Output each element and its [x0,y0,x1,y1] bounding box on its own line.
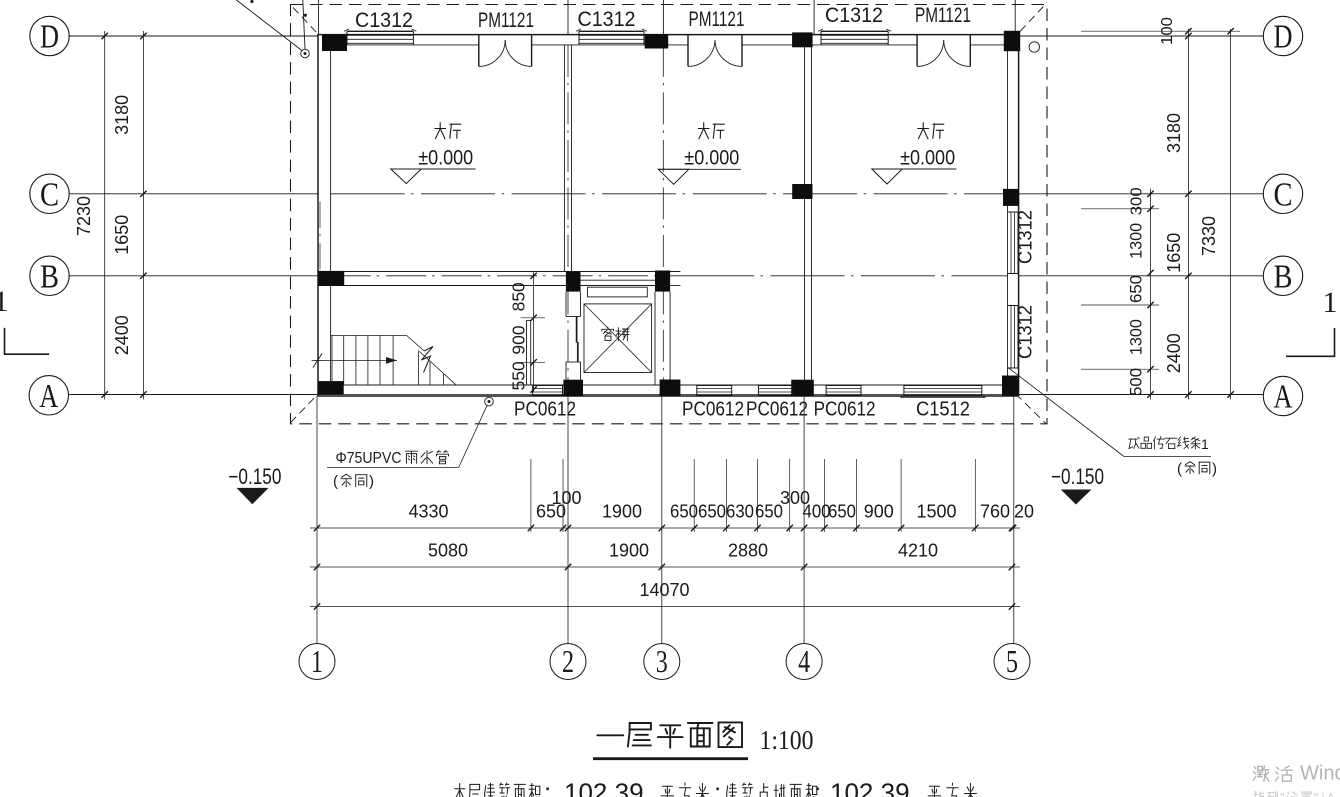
svg-text:500: 500 [1127,368,1146,396]
svg-text:): ) [369,473,374,490]
svg-text:3: 3 [656,643,668,679]
svg-text:100: 100 [1159,17,1176,45]
svg-text:650: 650 [670,502,698,522]
svg-text:A: A [39,378,58,415]
svg-text:PC0612: PC0612 [682,399,744,421]
svg-text:3180: 3180 [112,95,132,135]
svg-text:1300: 1300 [1127,223,1146,259]
svg-text:3180: 3180 [1164,113,1184,153]
svg-text:±0.000: ±0.000 [900,146,955,169]
svg-text:±0.000: ±0.000 [684,146,739,169]
svg-text:4210: 4210 [898,541,938,561]
svg-text:B: B [40,258,59,295]
svg-text:1650: 1650 [1164,233,1184,273]
svg-text:1: 1 [1323,286,1338,319]
svg-text:−0.150: −0.150 [1051,464,1104,489]
svg-text:2880: 2880 [728,541,768,561]
svg-text:PC0612: PC0612 [514,399,576,421]
svg-text:650: 650 [828,502,856,522]
svg-text:B: B [1274,258,1293,295]
svg-text:7230: 7230 [74,196,94,236]
svg-text:): ) [1212,461,1217,478]
svg-text:1: 1 [311,643,323,679]
svg-text:PC0612: PC0612 [746,399,808,421]
svg-text:630: 630 [726,502,754,522]
svg-text:900: 900 [864,502,894,522]
svg-text:900: 900 [509,325,529,354]
svg-text:5: 5 [1006,643,1018,679]
svg-text:±0.000: ±0.000 [418,146,473,169]
svg-text:300: 300 [1129,187,1146,215]
svg-text:650: 650 [755,502,783,522]
svg-text:D: D [40,19,59,56]
svg-text:2: 2 [562,643,574,679]
svg-text:1300: 1300 [1127,319,1146,355]
svg-text:102.39: 102.39 [564,778,644,797]
svg-text:PC0612: PC0612 [814,399,876,421]
svg-text:14070: 14070 [639,580,689,600]
svg-text:C: C [1274,176,1293,213]
svg-text:D: D [1274,19,1293,56]
svg-text:C1312: C1312 [1016,210,1037,264]
svg-text:C1312: C1312 [1016,305,1037,359]
svg-text:C: C [40,176,59,213]
svg-text:7330: 7330 [1199,216,1219,256]
svg-text:1: 1 [1201,436,1209,452]
svg-text:2400: 2400 [112,315,132,355]
svg-text:C1312: C1312 [578,8,636,31]
svg-text:400: 400 [803,502,831,522]
svg-text::: : [544,777,551,797]
svg-text:C1312: C1312 [355,9,413,32]
svg-text:(: ( [333,473,338,490]
svg-text:1900: 1900 [602,502,642,522]
svg-text:−0.150: −0.150 [228,464,281,489]
svg-text:C1312: C1312 [825,4,883,27]
svg-text:PM1121: PM1121 [915,4,971,27]
svg-text:PM1121: PM1121 [478,9,534,32]
svg-text:5080: 5080 [428,541,468,561]
svg-text:(: ( [1177,461,1182,478]
svg-text:2400: 2400 [1164,333,1184,373]
svg-text:650: 650 [698,502,726,522]
svg-text:760: 760 [980,502,1010,522]
svg-text:1500: 1500 [916,502,956,522]
svg-text:850: 850 [509,282,529,311]
svg-text:Φ75UPVC: Φ75UPVC [336,450,402,467]
svg-text:650: 650 [1127,275,1146,303]
svg-text:": " [1314,790,1319,797]
svg-text:": " [1280,790,1285,797]
svg-text:1: 1 [0,285,9,318]
svg-text:Windows: Windows [1300,763,1340,785]
svg-text:C1512: C1512 [916,399,970,421]
svg-text::: : [814,777,821,797]
svg-text:550: 550 [509,361,529,390]
svg-text:100: 100 [551,488,581,508]
svg-text:4330: 4330 [408,502,448,522]
svg-text:1900: 1900 [609,541,649,561]
svg-text:1:100: 1:100 [760,725,814,755]
svg-text:102.39: 102.39 [830,778,910,797]
svg-text:;: ; [714,777,721,797]
svg-text:A: A [1274,379,1293,416]
svg-text:1650: 1650 [112,215,132,255]
svg-text:PM1121: PM1121 [689,8,745,31]
svg-text:4: 4 [798,643,810,679]
svg-text:20: 20 [1014,502,1034,522]
